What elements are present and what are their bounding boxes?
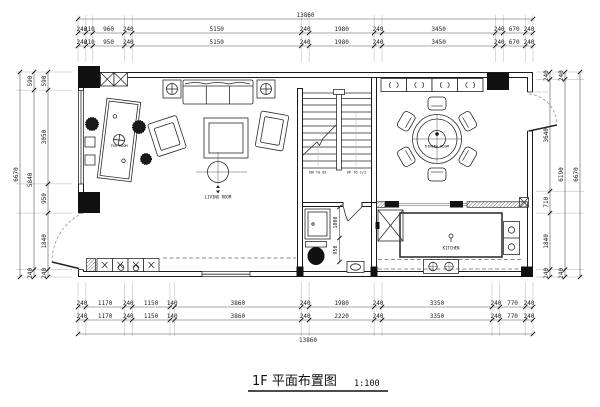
dim-label: 240: [123, 39, 134, 46]
dim-label: 5150: [209, 26, 224, 33]
dim-label: 6670: [13, 167, 20, 182]
dim-label: 240: [373, 26, 384, 33]
dim-label: 1980: [334, 26, 349, 33]
stairs-down-label: DN TO B1: [309, 171, 326, 175]
dim-label: 13860: [299, 337, 317, 344]
dim-label: 1980: [334, 39, 349, 46]
dim-label: 3450: [431, 39, 446, 46]
dim-label: 3640: [543, 128, 550, 143]
sofa: [183, 80, 253, 104]
dining-room: DINING ROOM: [381, 79, 483, 182]
dim-label: 590: [27, 75, 34, 86]
tea-room-label: TEA ROOM: [110, 144, 128, 148]
dim-label: 240: [27, 267, 34, 278]
sliding-door: [385, 201, 467, 208]
dim-label: 240: [41, 267, 48, 278]
stairs: DN TO B1 UP TO 1/2: [303, 90, 372, 175]
dim-label: 240: [77, 300, 88, 307]
dim-label: 3350: [430, 313, 445, 320]
kitchen-label: KITCHEN: [443, 246, 460, 251]
dim-label: 240: [300, 300, 311, 307]
stove: [424, 260, 459, 274]
dim-label: 240: [373, 300, 384, 307]
kitchen-sink: [504, 222, 520, 255]
dim-label: 240: [558, 70, 565, 81]
dim-label: 1150: [144, 300, 159, 307]
dim-label: 140: [167, 300, 178, 307]
dining-table: [413, 115, 462, 164]
tea-stools: [85, 137, 95, 165]
dim-label: 240: [524, 313, 535, 320]
tea-table: [97, 98, 140, 182]
dim-label: 240: [524, 300, 535, 307]
dim-label: 240: [490, 300, 501, 307]
dim-label: 3350: [430, 300, 445, 307]
dim-label: 240: [373, 39, 384, 46]
dim-label: 240: [300, 39, 311, 46]
dim-label: 240: [524, 39, 535, 46]
dim-label: 670: [509, 39, 520, 46]
dim-label: 240: [524, 26, 535, 33]
shower: [305, 209, 330, 239]
side-table-right: [257, 80, 275, 98]
tea-room: TEA ROOM: [85, 98, 152, 182]
dim-label: 240: [123, 26, 134, 33]
dim-label: 950: [103, 39, 114, 46]
dim-label: 240: [373, 313, 384, 320]
dim-label: 1170: [98, 313, 113, 320]
dim-label: 240: [77, 313, 88, 320]
dim-label: 140: [167, 313, 178, 320]
dim-label: 1840: [41, 234, 48, 249]
dining-cabinets: [381, 79, 483, 92]
dim-label: 240: [543, 70, 550, 81]
dim-label: 1170: [98, 300, 113, 307]
dim-label: 240: [123, 313, 134, 320]
dim-label: 210: [84, 26, 95, 33]
dim-label: 240: [494, 39, 505, 46]
dim-label: 3860: [231, 313, 246, 320]
hatched-pier: [87, 259, 96, 272]
drawing-title: 1F 平面布置图: [252, 374, 337, 389]
bottom-cabinets: [97, 259, 159, 272]
kitchen: KITCHEN: [376, 210, 522, 274]
dim-label: 770: [507, 313, 518, 320]
dim-label: 710: [543, 196, 550, 207]
bathroom: 1000 950: [305, 205, 364, 273]
bathroom-door: [344, 207, 363, 221]
living-room-label: LIVING ROOM: [205, 195, 232, 200]
bathroom-dim-chain: 1000 950: [333, 205, 342, 264]
dim-label: 670: [509, 26, 520, 33]
dim-label: 590: [41, 75, 48, 86]
dim-label: 210: [84, 39, 95, 46]
dim-label: 3050: [41, 129, 48, 144]
dim-label: 2220: [334, 313, 349, 320]
drawing-scale: 1:100: [354, 379, 380, 389]
dim-label: 6670: [573, 167, 580, 182]
dim-label: 1150: [144, 313, 159, 320]
dim-label: 240: [543, 267, 550, 278]
dim-label: 1980: [334, 300, 349, 307]
dim-label: 960: [103, 26, 114, 33]
toilet: [306, 242, 327, 266]
dim-label: 240: [123, 300, 134, 307]
dim-label: 3860: [231, 300, 246, 307]
dim-label: 240: [494, 26, 505, 33]
dim-label: 1000: [333, 216, 339, 228]
dim-label: 240: [300, 26, 311, 33]
dim-label: 770: [507, 300, 518, 307]
dim-label: 240: [300, 313, 311, 320]
dim-label: 5840: [27, 172, 34, 187]
side-table-left: [163, 80, 181, 98]
title-block: 1F 平面布置图 1:100: [248, 374, 388, 391]
pendant-light-icon: [449, 234, 453, 242]
dim-label: 5150: [209, 39, 224, 46]
coffee-table: [204, 118, 248, 158]
floor-plan-canvas: 1386024021096024051502401980240345024067…: [0, 0, 600, 407]
dining-room-label: DINING ROOM: [425, 145, 450, 149]
dim-label: 240: [558, 267, 565, 278]
bathroom-sink: [347, 262, 364, 273]
dim-label: 950: [333, 245, 339, 254]
floor-plan: 1386024021096024051502401980240345024067…: [0, 0, 600, 407]
dim-label: 240: [490, 313, 501, 320]
dim-label: 6190: [558, 167, 565, 182]
dim-label: 13860: [296, 12, 314, 19]
fridge: [376, 210, 404, 241]
living-room: LIVING ROOM: [147, 80, 288, 200]
top-closets: [101, 73, 128, 87]
dim-label: 950: [41, 193, 48, 204]
dim-label: 3450: [431, 26, 446, 33]
dim-label: 1840: [543, 234, 550, 249]
armchair-right: [255, 111, 289, 151]
armchair-left: [147, 115, 186, 157]
stairs-up-label: UP TO 1/2: [347, 171, 366, 175]
